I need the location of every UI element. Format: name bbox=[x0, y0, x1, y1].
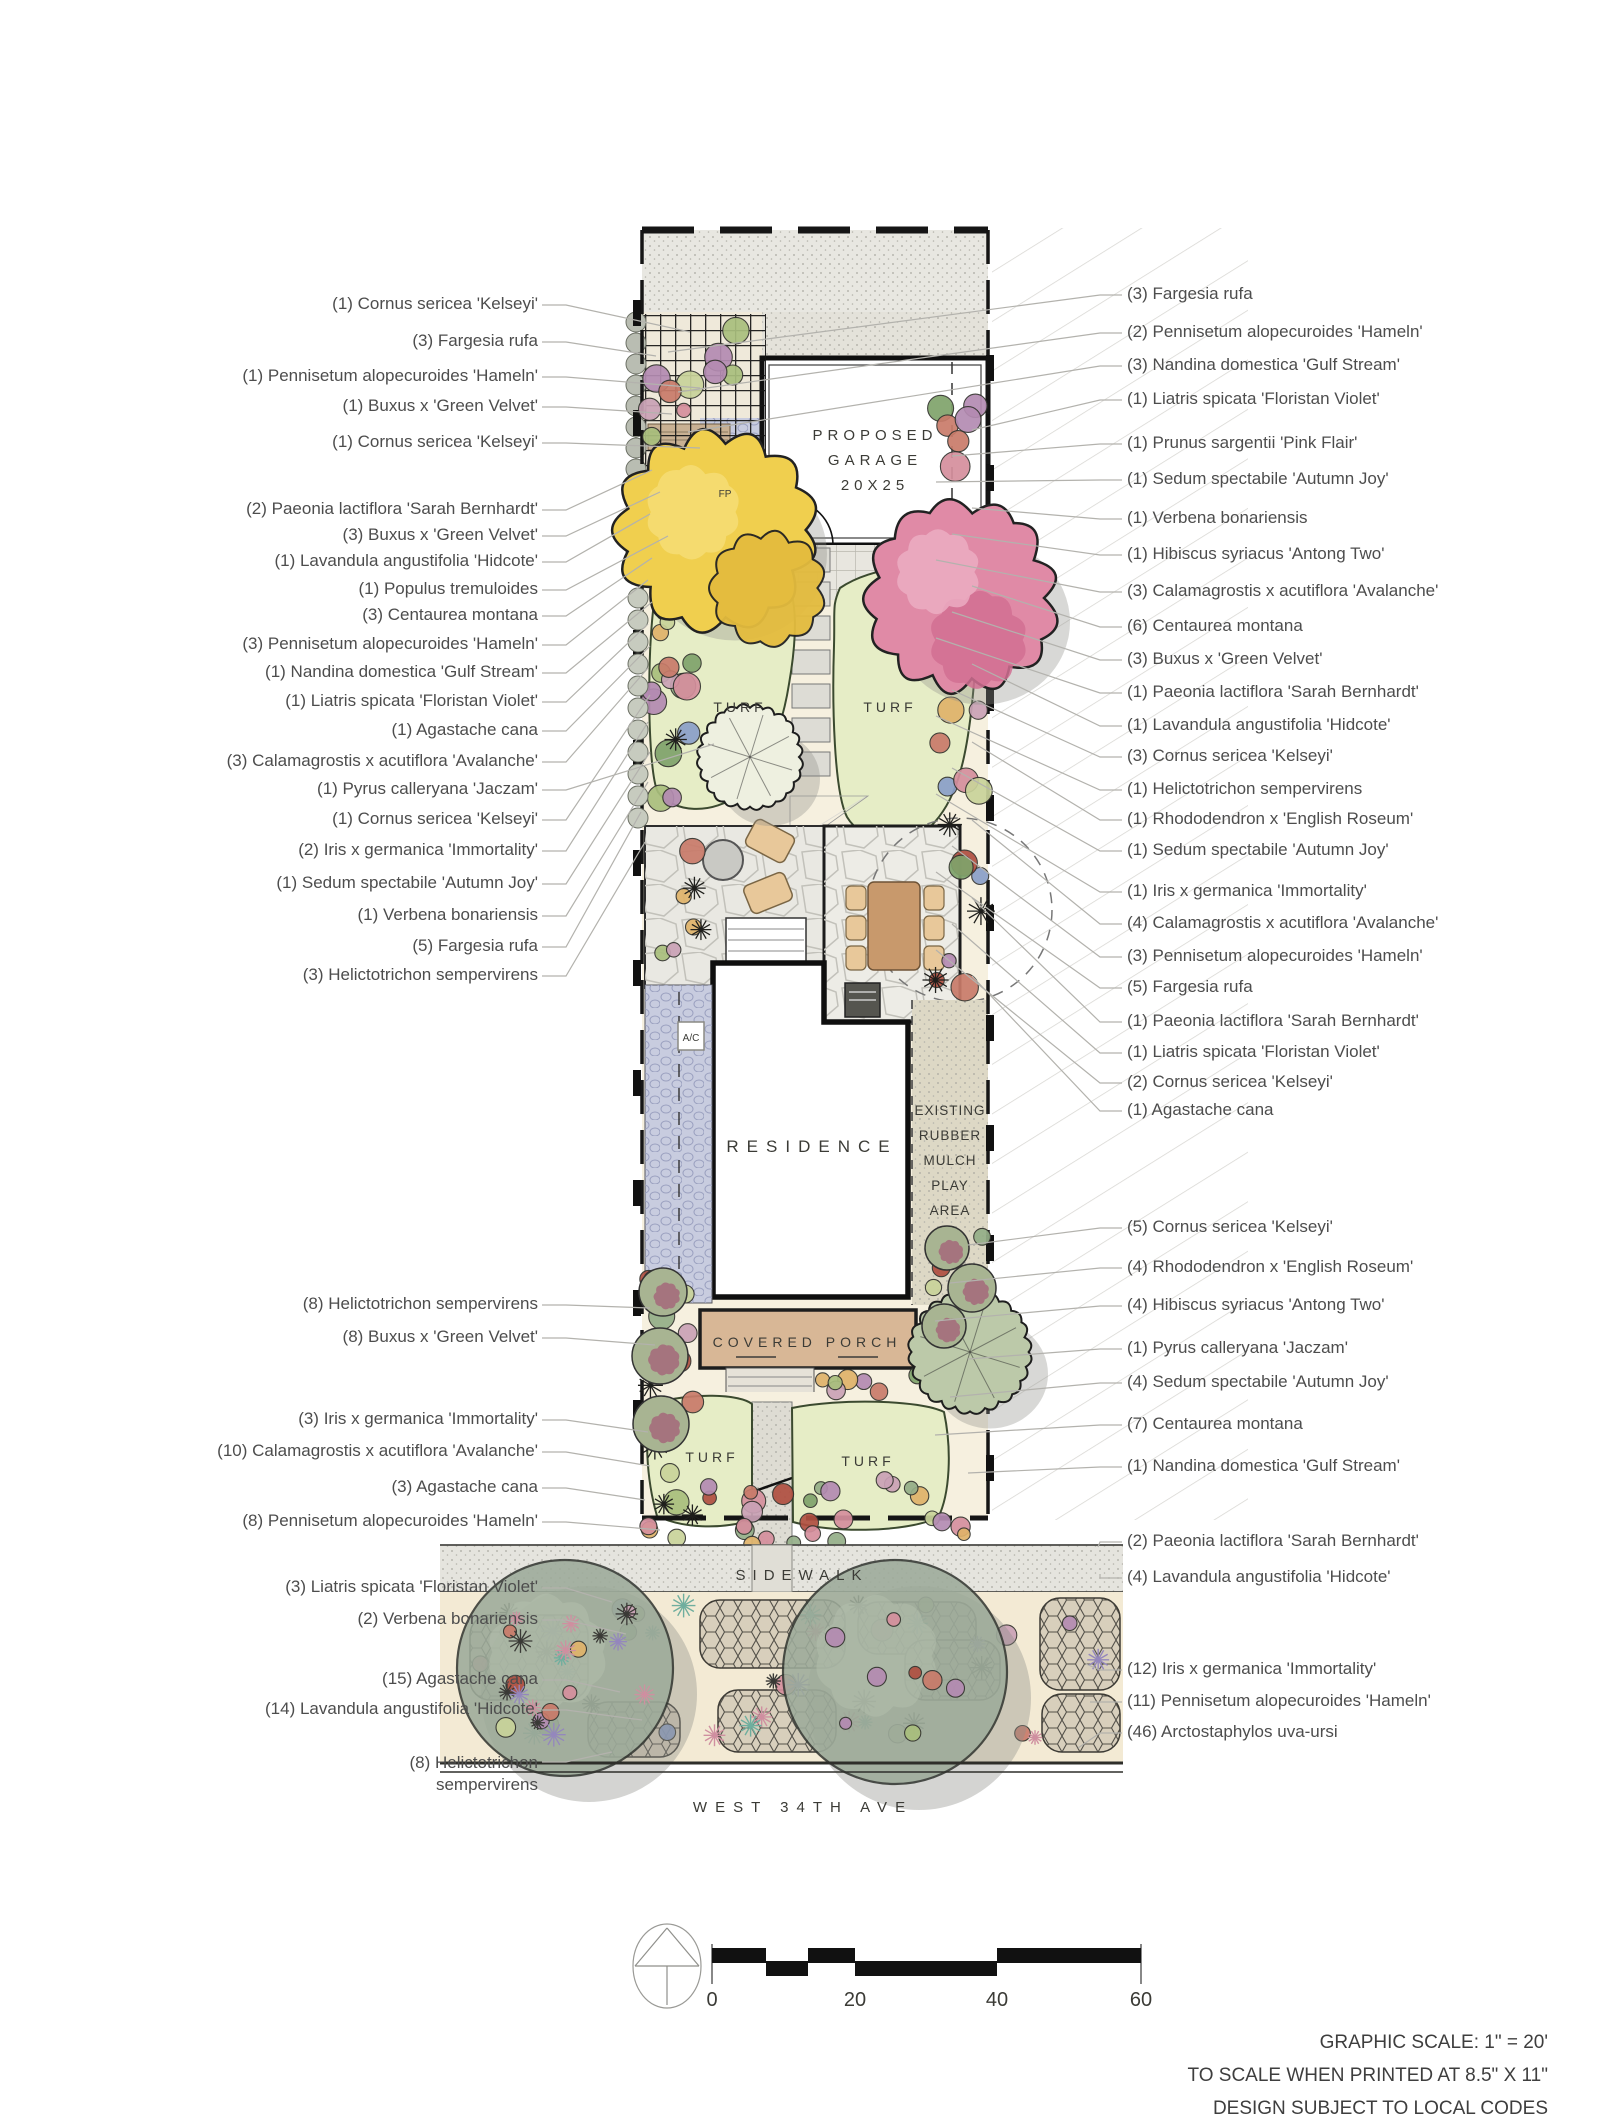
plant-label-right: (5) Cornus sericea 'Kelseyi' bbox=[1127, 1217, 1333, 1237]
path-shape bbox=[635, 1928, 667, 1966]
turf-label-front-left: TURF bbox=[685, 1449, 738, 1465]
garage-label: 20X25 bbox=[841, 477, 909, 494]
plant-label-right: (1) Liatris spicata 'Floristan Violet' bbox=[1127, 1042, 1380, 1062]
plant-label-right: (12) Iris x germanica 'Immortality' bbox=[1127, 1659, 1376, 1679]
plant-label-left: (1) Buxus x 'Green Velvet' bbox=[343, 396, 538, 416]
garage-label: GARAGE bbox=[828, 452, 922, 469]
plant-symbol bbox=[870, 1383, 887, 1400]
fence-post bbox=[986, 1125, 994, 1151]
scale-bar-block bbox=[766, 1962, 808, 1976]
turf-label-back-left: TURF bbox=[713, 699, 766, 715]
plant-label-left: (2) Verbena bonariensis bbox=[357, 1609, 538, 1629]
plant-label-left: (3) Liatris spicata 'Floristan Violet' bbox=[285, 1577, 538, 1597]
plant-label-right: (1) Rhododendron x 'English Roseum' bbox=[1127, 809, 1413, 829]
plant-label-left: (3) Centaurea montana bbox=[362, 605, 538, 625]
scale-tick: 20 bbox=[844, 1989, 866, 2011]
plant-label-right: (1) Lavandula angustifolia 'Hidcote' bbox=[1127, 715, 1391, 735]
plant-symbol bbox=[905, 1725, 921, 1741]
plant-symbol bbox=[643, 427, 661, 445]
plant-label-right: (3) Fargesia rufa bbox=[1127, 284, 1253, 304]
plant-label-left: (8) Buxus x 'Green Velvet' bbox=[343, 1327, 538, 1347]
plant-label-left: (14) Lavandula angustifolia 'Hidcote' bbox=[265, 1699, 538, 1719]
plant-label-right: (6) Centaurea montana bbox=[1127, 616, 1303, 636]
rect-shape bbox=[1040, 1598, 1120, 1690]
turf-label-back-right: TURF bbox=[863, 699, 916, 715]
plant-label-right: (7) Centaurea montana bbox=[1127, 1414, 1303, 1434]
sidewalk-label: SIDEWALK bbox=[736, 1567, 869, 1584]
plant-symbol bbox=[958, 1528, 971, 1541]
plant-symbol bbox=[661, 1464, 680, 1483]
plant-label-right: (1) Paeonia lactiflora 'Sarah Bernhardt' bbox=[1127, 682, 1419, 702]
play-area-label: MULCH bbox=[923, 1153, 976, 1168]
leader-line bbox=[542, 1488, 645, 1500]
plant-symbol bbox=[1062, 1616, 1077, 1631]
plant-symbol bbox=[909, 1666, 922, 1679]
plant-label-right: (4) Rhododendron x 'English Roseum' bbox=[1127, 1257, 1413, 1277]
plant-label-right: (1) Pyrus calleryana 'Jaczam' bbox=[1127, 1338, 1348, 1358]
plant-label-left: (1) Populus tremuloides bbox=[358, 579, 538, 599]
plant-symbol bbox=[876, 1472, 893, 1489]
residence-label: RESIDENCE bbox=[726, 1137, 897, 1156]
plant-label-left: (3) Iris x germanica 'Immortality' bbox=[298, 1409, 538, 1429]
plant-symbol bbox=[677, 403, 691, 417]
plant-label-right: (3) Cornus sericea 'Kelseyi' bbox=[1127, 746, 1333, 766]
plant-symbol bbox=[701, 1479, 717, 1495]
stepping-stone bbox=[792, 650, 830, 674]
landscape-plan-canvas: PROPOSED GARAGE 20X25 TURF TURF RESIDENC… bbox=[0, 0, 1600, 2125]
plant-label-left: (1) Pyrus calleryana 'Jaczam' bbox=[317, 779, 538, 799]
plant-symbol bbox=[821, 1482, 840, 1501]
scale-bar-block bbox=[855, 1962, 997, 1976]
plant-symbol bbox=[904, 1481, 918, 1495]
plant-label-right: (5) Fargesia rufa bbox=[1127, 977, 1253, 997]
ac-unit-label: A/C bbox=[683, 1033, 700, 1044]
plant-label-right: (1) Verbena bonariensis bbox=[1127, 508, 1308, 528]
plant-label-left: (3) Calamagrostis x acutiflora 'Avalanch… bbox=[227, 751, 538, 771]
plant-label-right: (4) Calamagrostis x acutiflora 'Avalanch… bbox=[1127, 913, 1438, 933]
fence-post bbox=[986, 1455, 994, 1481]
play-area-label: RUBBER bbox=[919, 1128, 981, 1143]
fargesia-hedge bbox=[628, 698, 648, 718]
plant-label-left: (1) Agastache cana bbox=[392, 720, 538, 740]
plant-label-right: (3) Buxus x 'Green Velvet' bbox=[1127, 649, 1322, 669]
plant-label-left: (1) Sedum spectabile 'Autumn Joy' bbox=[276, 873, 538, 893]
plant-symbol bbox=[840, 1717, 852, 1729]
plant-label-right: (3) Calamagrostis x acutiflora 'Avalanch… bbox=[1127, 581, 1438, 601]
dining-chair bbox=[846, 946, 866, 970]
leader-line bbox=[542, 722, 648, 851]
plant-label-left: (1) Cornus sericea 'Kelseyi' bbox=[332, 432, 538, 452]
plant-symbol bbox=[816, 1373, 830, 1387]
plant-label-right: (4) Sedum spectabile 'Autumn Joy' bbox=[1127, 1372, 1389, 1392]
plant-label-left: (2) Iris x germanica 'Immortality' bbox=[298, 840, 538, 860]
dining-chair bbox=[924, 946, 944, 970]
plant-symbol bbox=[867, 1667, 886, 1686]
plant-label-left: (1) Pennisetum alopecuroides 'Hameln' bbox=[242, 366, 538, 386]
turf-label-front-right: TURF bbox=[841, 1453, 894, 1469]
path-shape bbox=[667, 1928, 699, 1966]
scale-tick: 40 bbox=[986, 1989, 1008, 2011]
plant-label-left: (1) Liatris spicata 'Floristan Violet' bbox=[285, 691, 538, 711]
plant-label-left: (5) Fargesia rufa bbox=[412, 936, 538, 956]
plant-label-right: (3) Pennisetum alopecuroides 'Hameln' bbox=[1127, 946, 1423, 966]
plant-symbol bbox=[663, 788, 682, 807]
plant-label-left: (2) Paeonia lactiflora 'Sarah Bernhardt' bbox=[246, 499, 538, 519]
scale-tick: 60 bbox=[1130, 1989, 1152, 2011]
fire-table bbox=[703, 840, 743, 880]
fence-post bbox=[986, 1015, 994, 1041]
print-scale-note: TO SCALE WHEN PRINTED AT 8.5" X 11" bbox=[1187, 2065, 1548, 2087]
plant-label-right: (46) Arctostaphylos uva-ursi bbox=[1127, 1722, 1338, 1742]
plant-label-right: (1) Iris x germanica 'Immortality' bbox=[1127, 881, 1367, 901]
leader-line bbox=[542, 842, 645, 976]
plant-symbol bbox=[948, 431, 969, 452]
plant-symbol bbox=[542, 1704, 559, 1721]
plant-symbol bbox=[887, 1613, 901, 1627]
plant-label-right: (2) Cornus sericea 'Kelseyi' bbox=[1127, 1072, 1333, 1092]
plant-symbol bbox=[639, 398, 661, 420]
plant-symbol bbox=[834, 1510, 853, 1529]
scale-bar-block bbox=[712, 1948, 766, 1962]
plant-label-left: (1) Verbena bonariensis bbox=[357, 905, 538, 925]
street-label: WEST 34TH AVE bbox=[693, 1799, 913, 1816]
plant-label-right: (3) Nandina domestica 'Gulf Stream' bbox=[1127, 355, 1400, 375]
plant-label-right: (1) Paeonia lactiflora 'Sarah Bernhardt' bbox=[1127, 1011, 1419, 1031]
plant-symbol bbox=[563, 1686, 577, 1700]
plant-label-right: (1) Sedum spectabile 'Autumn Joy' bbox=[1127, 469, 1389, 489]
plant-symbol bbox=[930, 733, 950, 753]
rect-shape bbox=[752, 1402, 792, 1545]
plant-symbol bbox=[673, 673, 700, 700]
plant-label-right: (1) Liatris spicata 'Floristan Violet' bbox=[1127, 389, 1380, 409]
plant-symbol bbox=[923, 1671, 942, 1690]
scale-tick: 0 bbox=[706, 1989, 717, 2011]
fence-post bbox=[986, 465, 994, 491]
fence-post bbox=[633, 1070, 641, 1096]
leader-line bbox=[542, 1420, 648, 1432]
plant-label-left: (10) Calamagrostis x acutiflora 'Avalanc… bbox=[217, 1441, 538, 1461]
stepping-stone bbox=[792, 684, 830, 708]
plant-label-left: (1) Cornus sericea 'Kelseyi' bbox=[332, 294, 538, 314]
plant-symbol bbox=[496, 1718, 516, 1738]
plant-symbol bbox=[825, 1628, 844, 1647]
plant-symbol bbox=[925, 1279, 941, 1295]
plant-label-right: (4) Lavandula angustifolia 'Hidcote' bbox=[1127, 1567, 1391, 1587]
leader-line bbox=[542, 1452, 650, 1466]
scale-bar-block bbox=[808, 1948, 855, 1962]
plant-label-right: (1) Agastache cana bbox=[1127, 1100, 1273, 1120]
dining-chair bbox=[924, 886, 944, 910]
plant-label-right: (2) Pennisetum alopecuroides 'Hameln' bbox=[1127, 322, 1423, 342]
fargesia-hedge bbox=[628, 588, 648, 608]
plant-label-left: (3) Fargesia rufa bbox=[412, 331, 538, 351]
plant-symbol bbox=[723, 317, 749, 343]
plant-label-left: (1) Nandina domestica 'Gulf Stream' bbox=[265, 662, 538, 682]
plant-label-right: (2) Paeonia lactiflora 'Sarah Bernhardt' bbox=[1127, 1531, 1419, 1551]
streetscape-layer bbox=[440, 1545, 1123, 1810]
dining-chair bbox=[846, 886, 866, 910]
plant-label-left: (3) Buxus x 'Green Velvet' bbox=[343, 525, 538, 545]
plant-label-left: (8) Helictotrichon sempervirens bbox=[388, 1752, 538, 1796]
plant-label-right: (4) Hibiscus syriacus 'Antong Two' bbox=[1127, 1295, 1385, 1315]
garage-label: PROPOSED bbox=[812, 427, 937, 444]
plant-symbol bbox=[805, 1526, 821, 1542]
plant-symbol bbox=[736, 1519, 752, 1535]
graphic-scale-note: GRAPHIC SCALE: 1" = 20' bbox=[1320, 2032, 1548, 2054]
scale-bar-block bbox=[997, 1948, 1141, 1962]
plant-label-left: (8) Pennisetum alopecuroides 'Hameln' bbox=[242, 1511, 538, 1531]
plant-symbol bbox=[704, 360, 727, 383]
covered-porch-label: COVERED PORCH bbox=[713, 1334, 902, 1350]
fence-post bbox=[633, 960, 641, 986]
plant-label-left: (3) Helictotrichon sempervirens bbox=[303, 965, 538, 985]
codes-note: DESIGN SUBJECT TO LOCAL CODES bbox=[1213, 2098, 1548, 2120]
plant-symbol bbox=[680, 838, 705, 863]
plant-symbol bbox=[966, 777, 993, 804]
plant-symbol bbox=[744, 1486, 758, 1500]
plant-label-right: (1) Hibiscus syriacus 'Antong Two' bbox=[1127, 544, 1385, 564]
plant-label-left: (1) Cornus sericea 'Kelseyi' bbox=[332, 809, 538, 829]
play-area-label: PLAY bbox=[931, 1178, 969, 1193]
plant-symbol bbox=[828, 1376, 842, 1390]
fire-pit-label: FP bbox=[719, 489, 732, 500]
plant-symbol bbox=[947, 1679, 965, 1697]
fence-post bbox=[633, 1180, 641, 1206]
plant-label-left: (15) Agastache cana bbox=[382, 1669, 538, 1689]
plant-symbol bbox=[856, 1374, 872, 1390]
rect-shape bbox=[1042, 1694, 1120, 1752]
plant-label-left: (1) Lavandula angustifolia 'Hidcote' bbox=[274, 551, 538, 571]
title-block-graphics: 0 20 40 60 bbox=[633, 1924, 1152, 2011]
plant-symbol bbox=[804, 1494, 818, 1508]
plant-label-right: (1) Prunus sargentii 'Pink Flair' bbox=[1127, 433, 1357, 453]
plant-label-right: (1) Nandina domestica 'Gulf Stream' bbox=[1127, 1456, 1400, 1476]
plant-label-left: (3) Agastache cana bbox=[392, 1477, 538, 1497]
dining-table bbox=[868, 882, 920, 970]
plant-label-right: (11) Pennisetum alopecuroides 'Hameln' bbox=[1127, 1691, 1431, 1711]
plant-symbol bbox=[678, 722, 700, 744]
plant-symbol bbox=[933, 1513, 951, 1531]
plant-label-left: (8) Helictotrichon sempervirens bbox=[303, 1294, 538, 1314]
neighbor-parcel-hatch bbox=[992, 228, 1248, 1520]
dining-chair bbox=[846, 916, 866, 940]
fence-post bbox=[633, 850, 641, 876]
fargesia-hedge bbox=[628, 632, 648, 652]
landscape-plan-sheet: { "plan": { "garage_label_lines": ["PROP… bbox=[0, 0, 1600, 2125]
play-area-label: EXISTING bbox=[914, 1103, 985, 1118]
plant-symbol bbox=[659, 657, 679, 677]
play-area-label: AREA bbox=[930, 1203, 971, 1218]
plant-symbol bbox=[667, 943, 681, 957]
plant-label-right: (1) Helictotrichon sempervirens bbox=[1127, 779, 1362, 799]
plant-symbol bbox=[773, 1484, 794, 1505]
plant-label-right: (1) Sedum spectabile 'Autumn Joy' bbox=[1127, 840, 1389, 860]
fence-post bbox=[986, 355, 994, 381]
fence-post bbox=[633, 300, 641, 326]
plant-symbol bbox=[659, 380, 681, 402]
dining-chair bbox=[924, 916, 944, 940]
leader-line bbox=[542, 812, 641, 947]
plant-symbol bbox=[683, 654, 701, 672]
plant-label-left: (3) Pennisetum alopecuroides 'Hameln' bbox=[242, 634, 538, 654]
plant-symbol bbox=[640, 1518, 657, 1535]
fargesia-hedge bbox=[628, 786, 648, 806]
